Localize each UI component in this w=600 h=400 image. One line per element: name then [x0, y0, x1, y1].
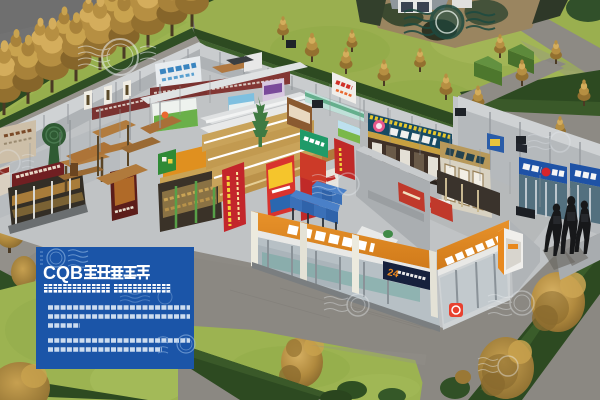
svg-text:CQB: CQB — [43, 263, 83, 283]
